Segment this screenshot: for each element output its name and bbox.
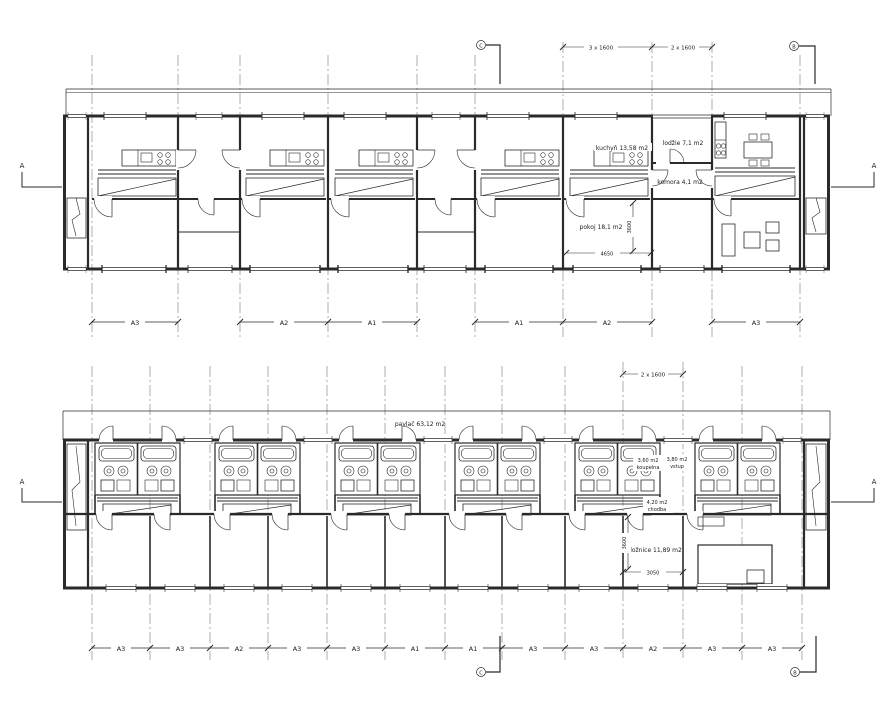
dim-vertical-lower: 3600: [622, 537, 628, 550]
section-marker-b-bottom: B: [791, 636, 817, 677]
sofa: [722, 224, 735, 256]
dim-2x1600-lower-label: 2 x 1600: [641, 373, 666, 379]
label-chodba-area: 4,20 m2: [647, 500, 668, 506]
room-label-pokoj: pokoj 18,1 m2: [580, 224, 623, 231]
blueprint-sheet: 3 x 1600 2 x 1600: [0, 0, 895, 720]
section-marker-b-top: B: [790, 42, 816, 85]
upper-top-dimension: 3 x 1600 2 x 1600: [560, 42, 715, 52]
bracket-label: A3: [752, 319, 761, 327]
section-marker-a-lower-right: A: [831, 478, 877, 502]
bracket-label: A2: [603, 319, 612, 327]
coffee-table: [744, 232, 760, 248]
unit-module: [329, 150, 415, 217]
bracket-label: A3: [176, 645, 185, 653]
label-koupelna-area: 3,60 m2: [638, 458, 659, 464]
svg-text:C: C: [479, 44, 483, 50]
label-vstup-name: vstup: [670, 464, 684, 470]
mat: [698, 517, 724, 526]
dim-3x1600-label: 3 x 1600: [589, 46, 614, 52]
unit-module: [475, 150, 561, 217]
room-label-komora: komora 4,1 m2: [657, 179, 703, 186]
floor-plan-drawing: 3 x 1600 2 x 1600: [0, 0, 895, 720]
upper-brackets: A3 A2 A1 A1 A2 A3: [89, 317, 803, 327]
bracket-label: A3: [768, 645, 777, 653]
dim-horizontal-lower: 3050: [647, 571, 660, 577]
svg-text:A: A: [872, 162, 877, 170]
section-marker-a-lower-left: A: [20, 478, 62, 502]
svg-text:B: B: [793, 671, 797, 677]
room-label-lodzie: lodžie 7,1 m2: [663, 140, 704, 147]
section-marker-c-bottom: C: [477, 636, 501, 677]
bracket-label: A3: [293, 645, 302, 653]
bracket-label: A1: [469, 645, 478, 653]
grid-lines-upper: [92, 42, 800, 337]
label-chodba-name: chodba: [648, 507, 666, 513]
lower-floor-plan: 2 x 1600 pavlač 63,12 m2: [63, 369, 830, 653]
room-label-loznice: ložnice 11,89 m2: [630, 547, 682, 554]
armchair: [766, 240, 779, 251]
svg-text:A: A: [872, 478, 877, 486]
section-marker-c-top: C: [477, 41, 501, 85]
svg-text:A: A: [20, 162, 25, 170]
bracket-label: A3: [117, 645, 126, 653]
bed: [698, 545, 772, 584]
upper-end-unit: [712, 122, 800, 256]
armchair: [766, 222, 779, 233]
bracket-label: A2: [649, 645, 658, 653]
unit-module: [564, 150, 650, 217]
bracket-label: A1: [368, 319, 377, 327]
unit-module: [92, 150, 178, 217]
section-marker-a-upper-right: A: [831, 162, 877, 187]
dim-vertical-upper: 3600: [627, 221, 633, 234]
lower-end-room: [698, 517, 772, 584]
bracket-label: A2: [280, 319, 289, 327]
svg-text:B: B: [792, 45, 796, 51]
room-label-pavlac: pavlač 63,12 m2: [395, 421, 446, 428]
bracket-label: A1: [411, 645, 420, 653]
label-vstup-area: 3,80 m2: [667, 457, 688, 463]
bracket-label: A2: [235, 645, 244, 653]
label-koupelna-name: koupelna: [637, 465, 660, 471]
upper-unit-modules: [92, 150, 650, 217]
bracket-label: A3: [529, 645, 538, 653]
svg-text:C: C: [479, 671, 483, 677]
unit-module: [240, 150, 326, 217]
upper-stair-halls: [178, 196, 475, 232]
upper-windows: [68, 112, 824, 273]
section-marker-a-upper-left: A: [20, 162, 62, 187]
lower-brackets: A3 A3 A2 A3 A3 A1 A1 A3 A3 A2 A3 A3: [89, 643, 805, 653]
room-label-kuchyn: kuchyň 13,58 m2: [596, 145, 648, 152]
bracket-label: A3: [131, 319, 140, 327]
dim-horizontal-upper: 4650: [601, 252, 614, 258]
bracket-label: A1: [515, 319, 524, 327]
bracket-label: A3: [590, 645, 599, 653]
bracket-label: A3: [352, 645, 361, 653]
bracket-label: A3: [708, 645, 717, 653]
table: [744, 142, 772, 158]
svg-text:A: A: [20, 478, 25, 486]
lower-top-dimension: 2 x 1600: [620, 369, 686, 379]
dim-2x1600-upper-label: 2 x 1600: [671, 46, 696, 52]
